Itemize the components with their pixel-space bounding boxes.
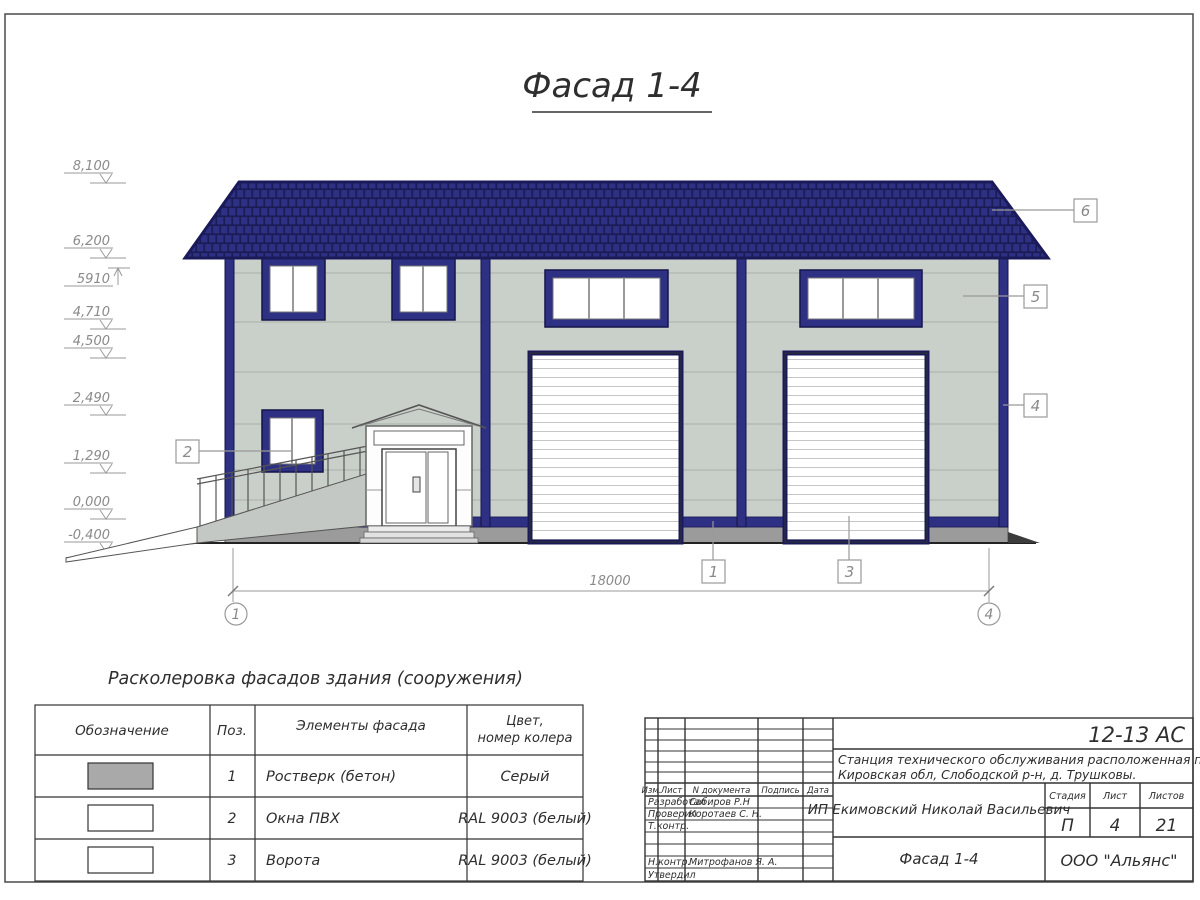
rev-header-doc: N документа <box>693 786 751 796</box>
pilaster-corner-right <box>999 257 1008 527</box>
rev-header-sign: Подпись <box>761 786 799 796</box>
role-name: Коротаев С. Н. <box>689 809 762 820</box>
drawing-title: Фасад 1-4 <box>522 66 712 112</box>
stage-label: Стадия <box>1049 791 1086 802</box>
window-upper-left-2 <box>392 258 455 320</box>
window-lower-left <box>262 410 323 472</box>
gate-right <box>785 353 927 542</box>
axis-number: 4 <box>985 607 994 623</box>
roof <box>185 182 1048 258</box>
door-leaf-narrow <box>428 452 448 523</box>
door-handle <box>413 477 420 492</box>
col-header-color-1: Цвет, <box>506 714 543 729</box>
pilaster-2 <box>481 257 490 527</box>
company-name: ООО "Альянс" <box>1060 851 1177 870</box>
col-header-elements: Элементы фасада <box>295 718 426 734</box>
object-description-line2: Кировская обл, Слободской р-н, д. Трушко… <box>838 768 1136 782</box>
col-header-color-2: номер колера <box>478 731 573 746</box>
cell-element: Ростверк (бетон) <box>266 769 396 785</box>
swatch <box>88 805 153 831</box>
callout-number: 4 <box>1031 397 1041 415</box>
sheets-label: Листов <box>1148 791 1185 802</box>
callout-number: 5 <box>1031 288 1041 306</box>
window-middle-3pane <box>545 270 668 327</box>
rev-header-izm: Изм. <box>642 786 662 796</box>
stage-value: П <box>1061 816 1074 836</box>
client-name: ИП Екимовский Николай Васильевич <box>808 802 1070 818</box>
sheet-label: Лист <box>1102 791 1128 802</box>
col-header-designation: Обозначение <box>75 723 169 739</box>
axis-marker-4: 4 <box>978 603 1000 625</box>
elevation-value: 8,100 <box>73 159 110 174</box>
elevation-value: -0,400 <box>68 528 110 543</box>
role-label: Т.контр. <box>648 821 689 832</box>
cell-pos: 3 <box>228 853 237 869</box>
sheets-value: 21 <box>1156 816 1178 836</box>
elevation-value: 6,200 <box>73 234 110 249</box>
callout-number: 2 <box>183 443 193 461</box>
facade-drawing: Фасад 1-4 8,100 6,200 5910 4,710 4, <box>0 0 1200 900</box>
elevation-value: 4,710 <box>73 305 110 320</box>
porch-transom <box>374 431 464 445</box>
cell-pos: 2 <box>228 811 237 827</box>
object-description-line1: Станция технического обслуживания распол… <box>838 753 1200 767</box>
pilaster-3 <box>737 257 746 527</box>
elevation-value: 4,500 <box>73 334 110 349</box>
window-right-3pane <box>800 270 922 327</box>
role-name: Сабиров Р.Н <box>689 797 750 808</box>
cell-element: Ворота <box>266 853 320 869</box>
swatch <box>88 763 153 789</box>
callout-number: 6 <box>1081 202 1091 220</box>
callout-number: 3 <box>845 563 855 581</box>
elevation-value: 0,000 <box>73 495 110 510</box>
cell-color: RAL 9003 (белый) <box>458 811 592 827</box>
sheet-title: Фасад 1-4 <box>899 850 978 868</box>
pilaster-corner-left <box>225 257 234 527</box>
window-upper-left-1 <box>262 258 325 320</box>
cell-element: Окна ПВХ <box>266 811 341 827</box>
role-name: Митрофанов Я. А. <box>689 857 778 868</box>
cell-color: RAL 9003 (белый) <box>458 853 592 869</box>
col-header-pos: Поз. <box>217 723 247 739</box>
axis-marker-1: 1 <box>225 603 247 625</box>
elevation-value: 5910 <box>77 272 110 287</box>
gate-left <box>530 353 681 542</box>
elevation-value: 1,290 <box>73 449 110 464</box>
color-table-title: Расколеровка фасадов здания (сооружения) <box>108 669 523 689</box>
role-label: Утвердил <box>648 870 696 881</box>
rev-header-date: Дата <box>806 786 829 796</box>
callout-number: 1 <box>709 563 719 581</box>
rev-header-list: Лист <box>660 786 684 796</box>
porch-steps <box>360 526 478 543</box>
sheet-value: 4 <box>1110 816 1121 836</box>
cell-color: Серый <box>500 769 549 785</box>
dimension-value: 18000 <box>589 574 630 589</box>
role-label: Н.контр. <box>648 857 691 868</box>
entrance-porch <box>352 405 486 543</box>
cell-pos: 1 <box>228 769 237 785</box>
page-title: Фасад 1-4 <box>522 66 701 106</box>
drawing-sheet: Фасад 1-4 8,100 6,200 5910 4,710 4, <box>0 0 1200 900</box>
elevation-value: 2,490 <box>73 391 110 406</box>
axis-number: 1 <box>232 607 241 623</box>
document-code: 12-13 АС <box>1088 723 1185 747</box>
swatch <box>88 847 153 873</box>
